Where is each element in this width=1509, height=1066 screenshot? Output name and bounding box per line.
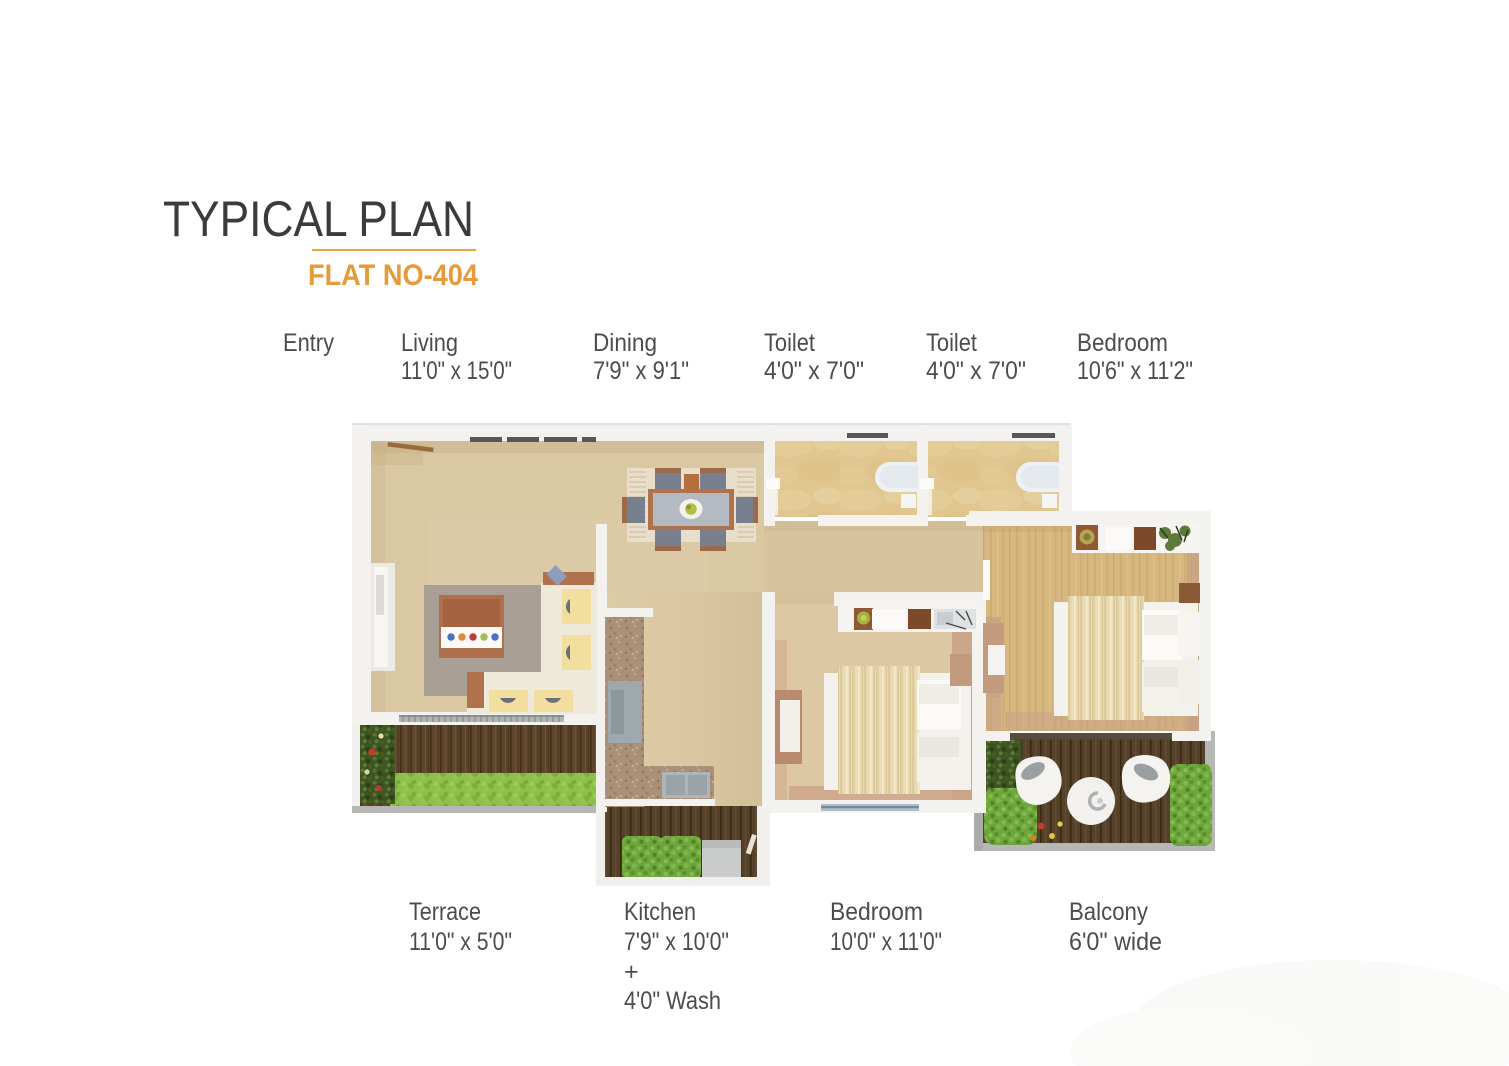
svg-text:+: + — [624, 958, 639, 986]
svg-text:Living: Living — [401, 329, 458, 357]
svg-text:Kitchen: Kitchen — [624, 898, 696, 926]
svg-text:Toilet: Toilet — [926, 329, 977, 357]
svg-text:4'0" x 7'0": 4'0" x 7'0" — [926, 357, 1026, 385]
svg-text:Balcony: Balcony — [1069, 898, 1148, 926]
svg-text:11'0" x 5'0": 11'0" x 5'0" — [409, 928, 512, 956]
svg-text:10'6" x 11'2": 10'6" x 11'2" — [1077, 357, 1193, 385]
svg-text:4'0" x 7'0": 4'0" x 7'0" — [764, 357, 864, 385]
svg-text:FLAT NO-404: FLAT NO-404 — [308, 259, 478, 292]
svg-text:4'0" Wash: 4'0" Wash — [624, 987, 721, 1015]
svg-text:Terrace: Terrace — [409, 898, 481, 926]
svg-text:Entry: Entry — [283, 329, 334, 357]
svg-text:TYPICAL PLAN: TYPICAL PLAN — [163, 191, 474, 247]
svg-text:11'0" x 15'0": 11'0" x 15'0" — [401, 357, 512, 385]
svg-text:Bedroom: Bedroom — [1077, 329, 1168, 357]
svg-text:Dining: Dining — [593, 329, 657, 357]
svg-text:Toilet: Toilet — [764, 329, 815, 357]
svg-text:10'0" x 11'0": 10'0" x 11'0" — [830, 928, 942, 956]
svg-text:7'9" x 10'0": 7'9" x 10'0" — [624, 928, 729, 956]
svg-text:7'9" x 9'1": 7'9" x 9'1" — [593, 357, 689, 385]
svg-text:Bedroom: Bedroom — [830, 898, 923, 926]
svg-text:6'0" wide: 6'0" wide — [1069, 928, 1162, 956]
